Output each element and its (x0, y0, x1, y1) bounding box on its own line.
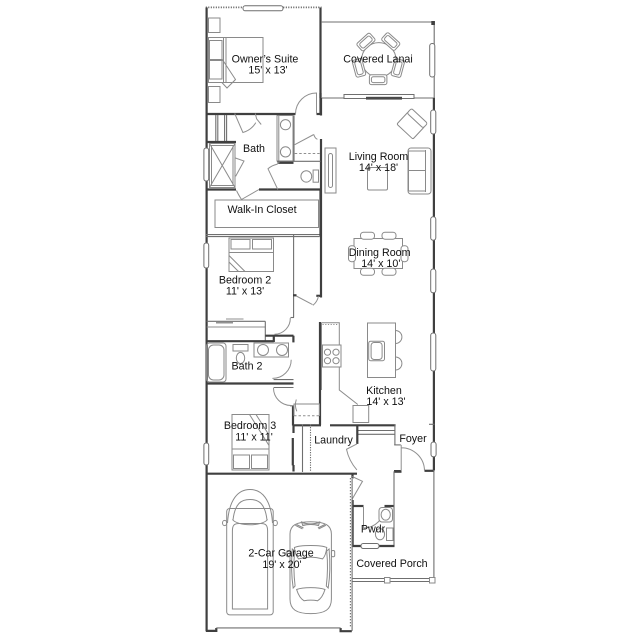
svg-text:11' x 13': 11' x 13' (226, 286, 264, 298)
svg-text:Bath: Bath (243, 143, 265, 155)
svg-text:Walk-In Closet: Walk-In Closet (227, 204, 296, 216)
svg-text:19' x 20': 19' x 20' (262, 559, 301, 571)
svg-text:Pwdr: Pwdr (361, 524, 386, 536)
svg-text:Covered Porch: Covered Porch (356, 558, 427, 570)
svg-text:14' x 18': 14' x 18' (359, 162, 398, 174)
svg-text:2-Car Garage: 2-Car Garage (248, 548, 313, 560)
svg-text:Covered Lanai: Covered Lanai (343, 54, 413, 66)
svg-text:Bath 2: Bath 2 (232, 361, 263, 373)
svg-text:14' x 10': 14' x 10' (361, 258, 400, 270)
svg-text:Foyer: Foyer (399, 433, 427, 445)
svg-text:Laundry: Laundry (314, 435, 353, 447)
svg-text:15' x 13': 15' x 13' (248, 65, 287, 77)
svg-text:11' x 11': 11' x 11' (235, 432, 273, 444)
svg-text:14' x 13': 14' x 13' (366, 396, 405, 408)
svg-text:Bedroom 3: Bedroom 3 (224, 420, 276, 432)
